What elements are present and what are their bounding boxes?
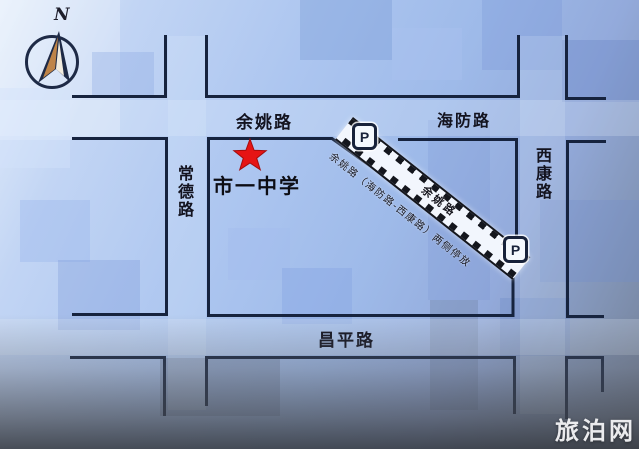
map-canvas: 余姚路（海防路-西康路）两侧停放 余姚路 P P N 余姚路 海防路 常德路 西… (0, 0, 639, 449)
school-star-icon (234, 139, 266, 170)
watermark: 旅泊网 (555, 411, 636, 446)
road-line-block-bottom-right (567, 358, 603, 420)
parking-icon-south: P (503, 236, 528, 263)
compass-icon (27, 31, 78, 88)
compass-north-label: N (54, 5, 70, 25)
road-line-block-top-middle (207, 35, 519, 97)
school-name-label: 市一中学 (213, 170, 301, 199)
road-line-block-top-right (567, 35, 607, 99)
parking-icon-letter: P (360, 129, 369, 145)
road-line-block-mid-left (72, 139, 167, 315)
label-xikang-road: 西康路 (529, 147, 553, 201)
road-line-block-bottom-left (70, 358, 165, 417)
road-line-block-mid-right (568, 142, 607, 317)
label-changping-road: 昌平路 (318, 326, 375, 351)
road-line-block-top-left (72, 35, 166, 97)
parking-icon-north: P (352, 123, 377, 150)
label-changde-road: 常德路 (171, 165, 195, 219)
map-linework (0, 0, 639, 449)
road-line-block-bottom-middle (207, 358, 515, 415)
label-haifang-road: 海防路 (437, 107, 491, 131)
label-yuyao-road: 余姚路 (236, 108, 293, 133)
parking-icon-letter: P (511, 242, 520, 258)
